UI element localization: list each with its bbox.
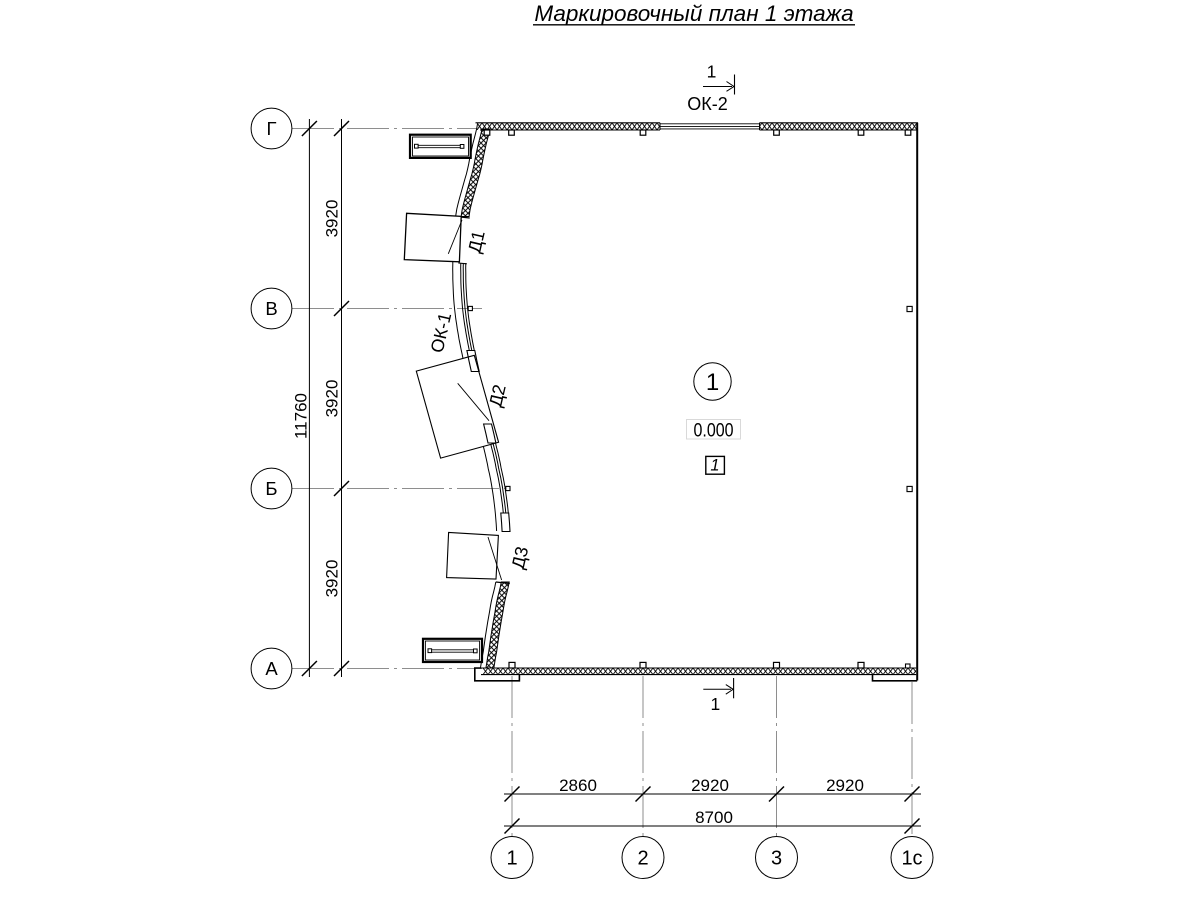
svg-text:1: 1 [706, 369, 719, 396]
svg-text:Маркировочный план 1 этажа: Маркировочный план 1 этажа [534, 1, 853, 26]
svg-text:11760: 11760 [292, 393, 311, 439]
svg-text:Б: Б [265, 478, 277, 499]
svg-text:3920: 3920 [323, 560, 342, 598]
svg-text:Г: Г [266, 118, 276, 139]
svg-text:1: 1 [710, 457, 719, 475]
svg-text:1: 1 [711, 694, 721, 714]
svg-text:2: 2 [637, 847, 648, 869]
svg-text:0.000: 0.000 [694, 420, 734, 442]
svg-text:3920: 3920 [323, 200, 342, 238]
svg-text:1с: 1с [901, 847, 922, 869]
svg-text:А: А [265, 658, 278, 679]
svg-text:1: 1 [707, 62, 717, 82]
svg-text:8700: 8700 [695, 808, 733, 827]
svg-text:3: 3 [771, 847, 782, 869]
svg-text:3920: 3920 [323, 380, 342, 418]
svg-text:1: 1 [506, 847, 517, 869]
svg-text:ОК-2: ОК-2 [687, 94, 728, 114]
svg-text:2920: 2920 [691, 776, 729, 795]
svg-text:2860: 2860 [559, 776, 597, 795]
svg-text:2920: 2920 [826, 776, 864, 795]
svg-text:В: В [265, 298, 277, 319]
